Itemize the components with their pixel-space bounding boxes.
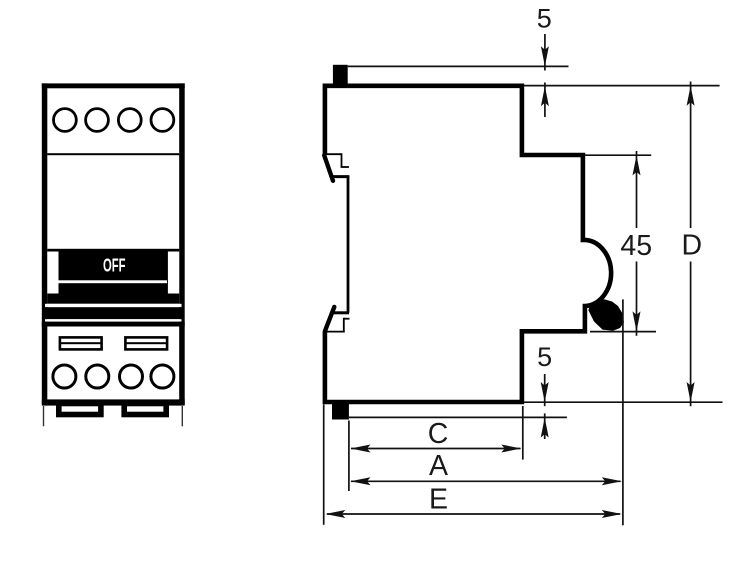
svg-text:5: 5 xyxy=(537,4,552,34)
svg-text:45: 45 xyxy=(620,230,652,262)
svg-text:C: C xyxy=(428,418,449,450)
svg-text:OFF: OFF xyxy=(103,255,126,275)
svg-text:D: D xyxy=(682,230,703,262)
svg-text:5: 5 xyxy=(537,342,552,372)
svg-text:A: A xyxy=(429,450,448,482)
svg-text:E: E xyxy=(429,483,448,515)
